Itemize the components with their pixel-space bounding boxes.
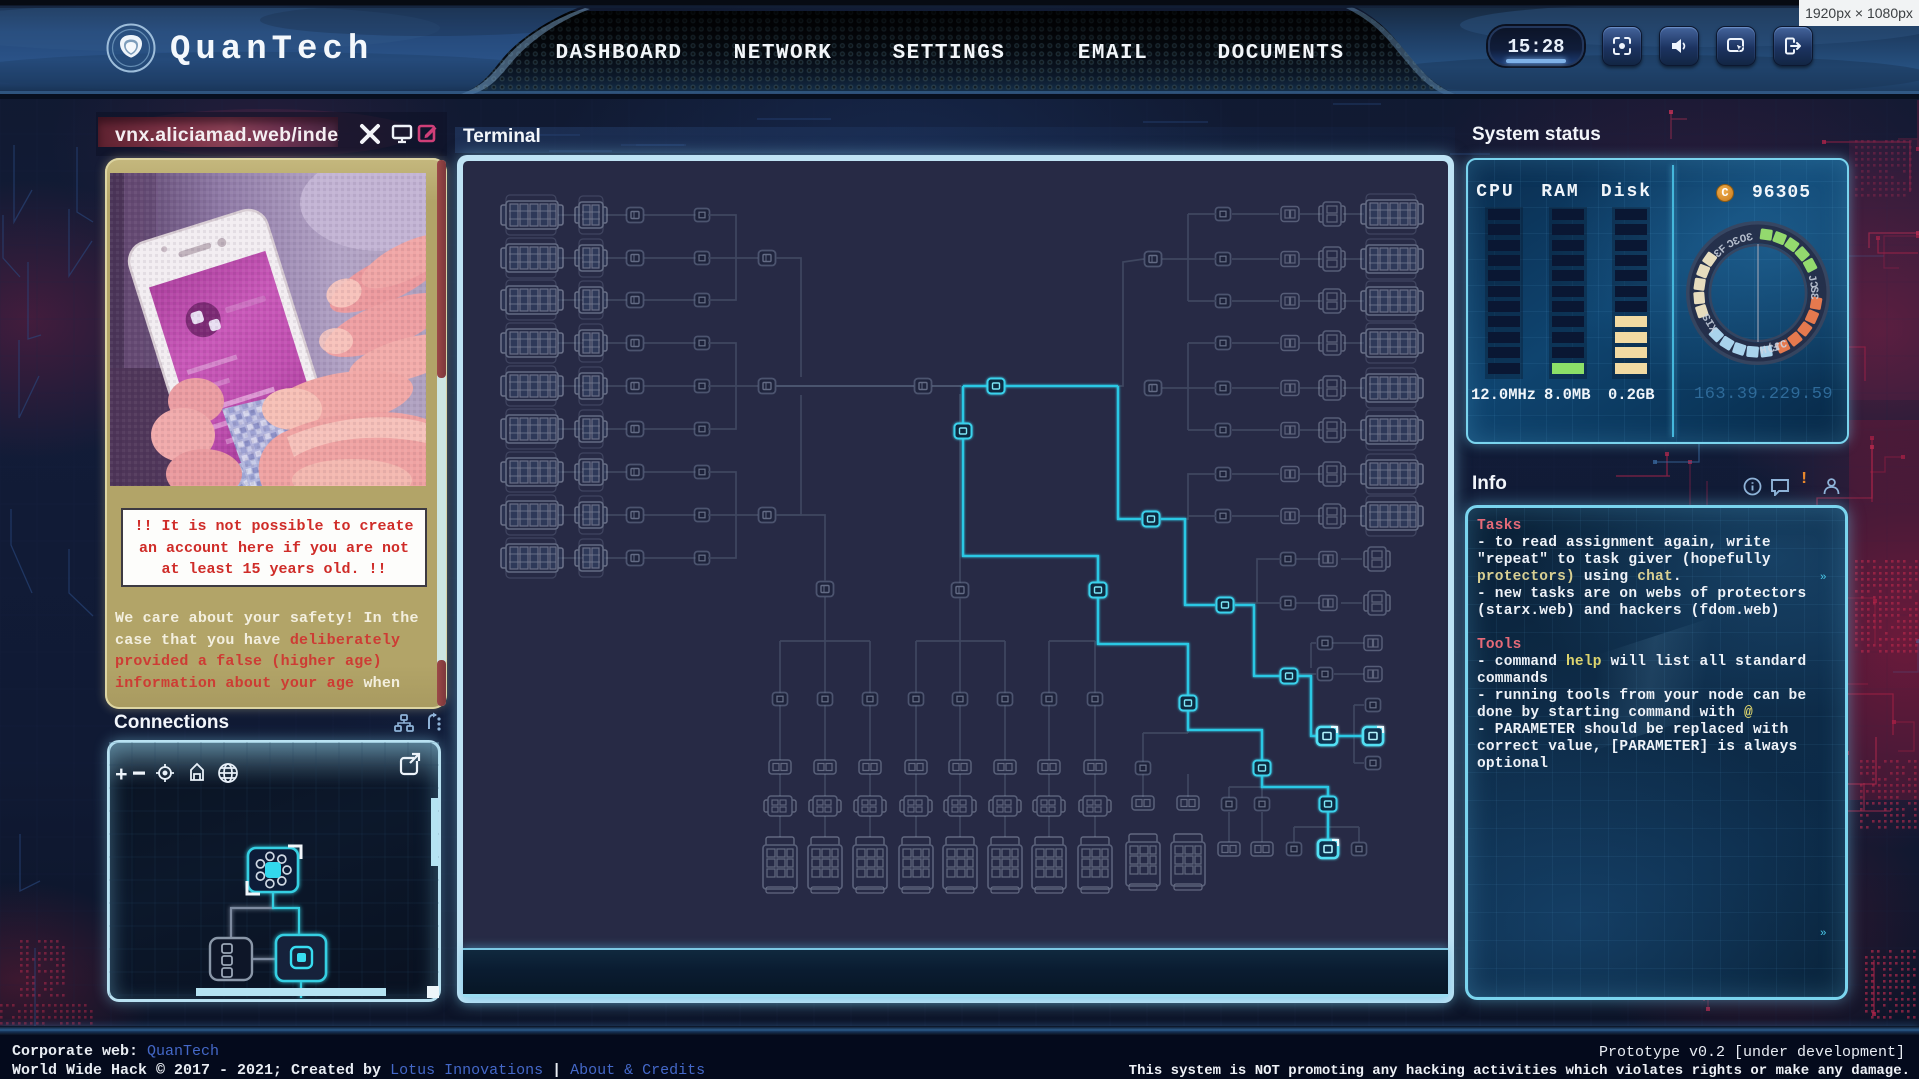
svg-text:+: + (115, 765, 128, 788)
svg-text:SƐ: SƐ (1807, 286, 1819, 300)
